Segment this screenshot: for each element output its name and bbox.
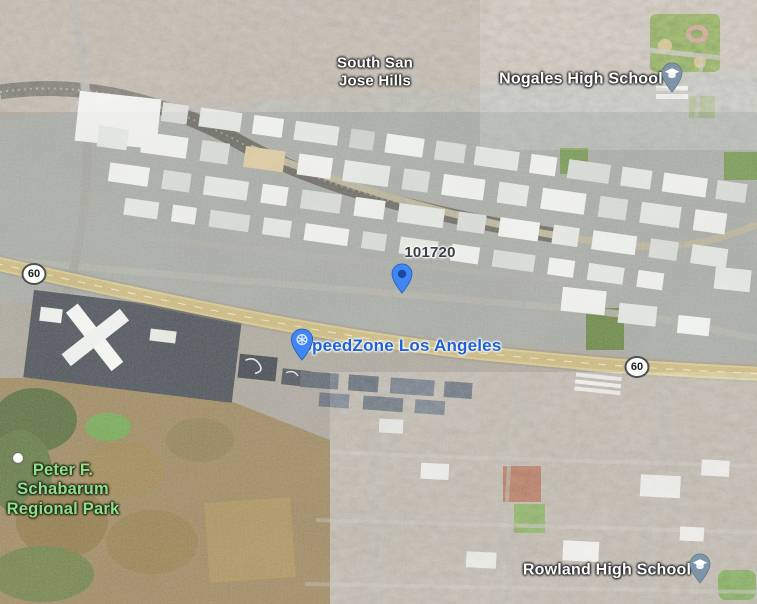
white-dot-marker[interactable] [13, 453, 23, 463]
neighborhood-label-line2: Jose Hills [337, 72, 413, 90]
poi-label-nogales-high-school[interactable]: Nogales High School [499, 71, 663, 90]
poi-label-rowland-high-school[interactable]: Rowland High School [523, 562, 691, 581]
park-label-line1: Peter F. [7, 461, 120, 480]
speedzone-pin[interactable] [290, 328, 314, 361]
address-label-101720: 101720 [404, 244, 455, 262]
address-pin[interactable] [391, 263, 413, 294]
pin-center-dot-icon [398, 270, 406, 278]
park-label-schabarum-regional-park[interactable]: Peter F. Schabarum Regional Park [7, 461, 120, 519]
route-60-shield-east: 60 [625, 356, 650, 378]
route-60-shield-west: 60 [22, 263, 47, 285]
poi-label-speedzone-los-angeles[interactable]: SpeedZone Los Angeles [301, 336, 502, 356]
map-canvas[interactable]: .b1{fill:#eceeeb}.b2{fill:#dfe2de}.b3{fi… [0, 0, 757, 604]
neighborhood-label-south-san-jose-hills: South San Jose Hills [337, 54, 413, 89]
school-pin-nogales[interactable] [661, 62, 683, 93]
park-label-line3: Regional Park [7, 500, 120, 519]
school-pin-rowland[interactable] [689, 553, 711, 584]
park-label-line2: Schabarum [7, 480, 120, 499]
neighborhood-label-line1: South San [337, 54, 413, 72]
